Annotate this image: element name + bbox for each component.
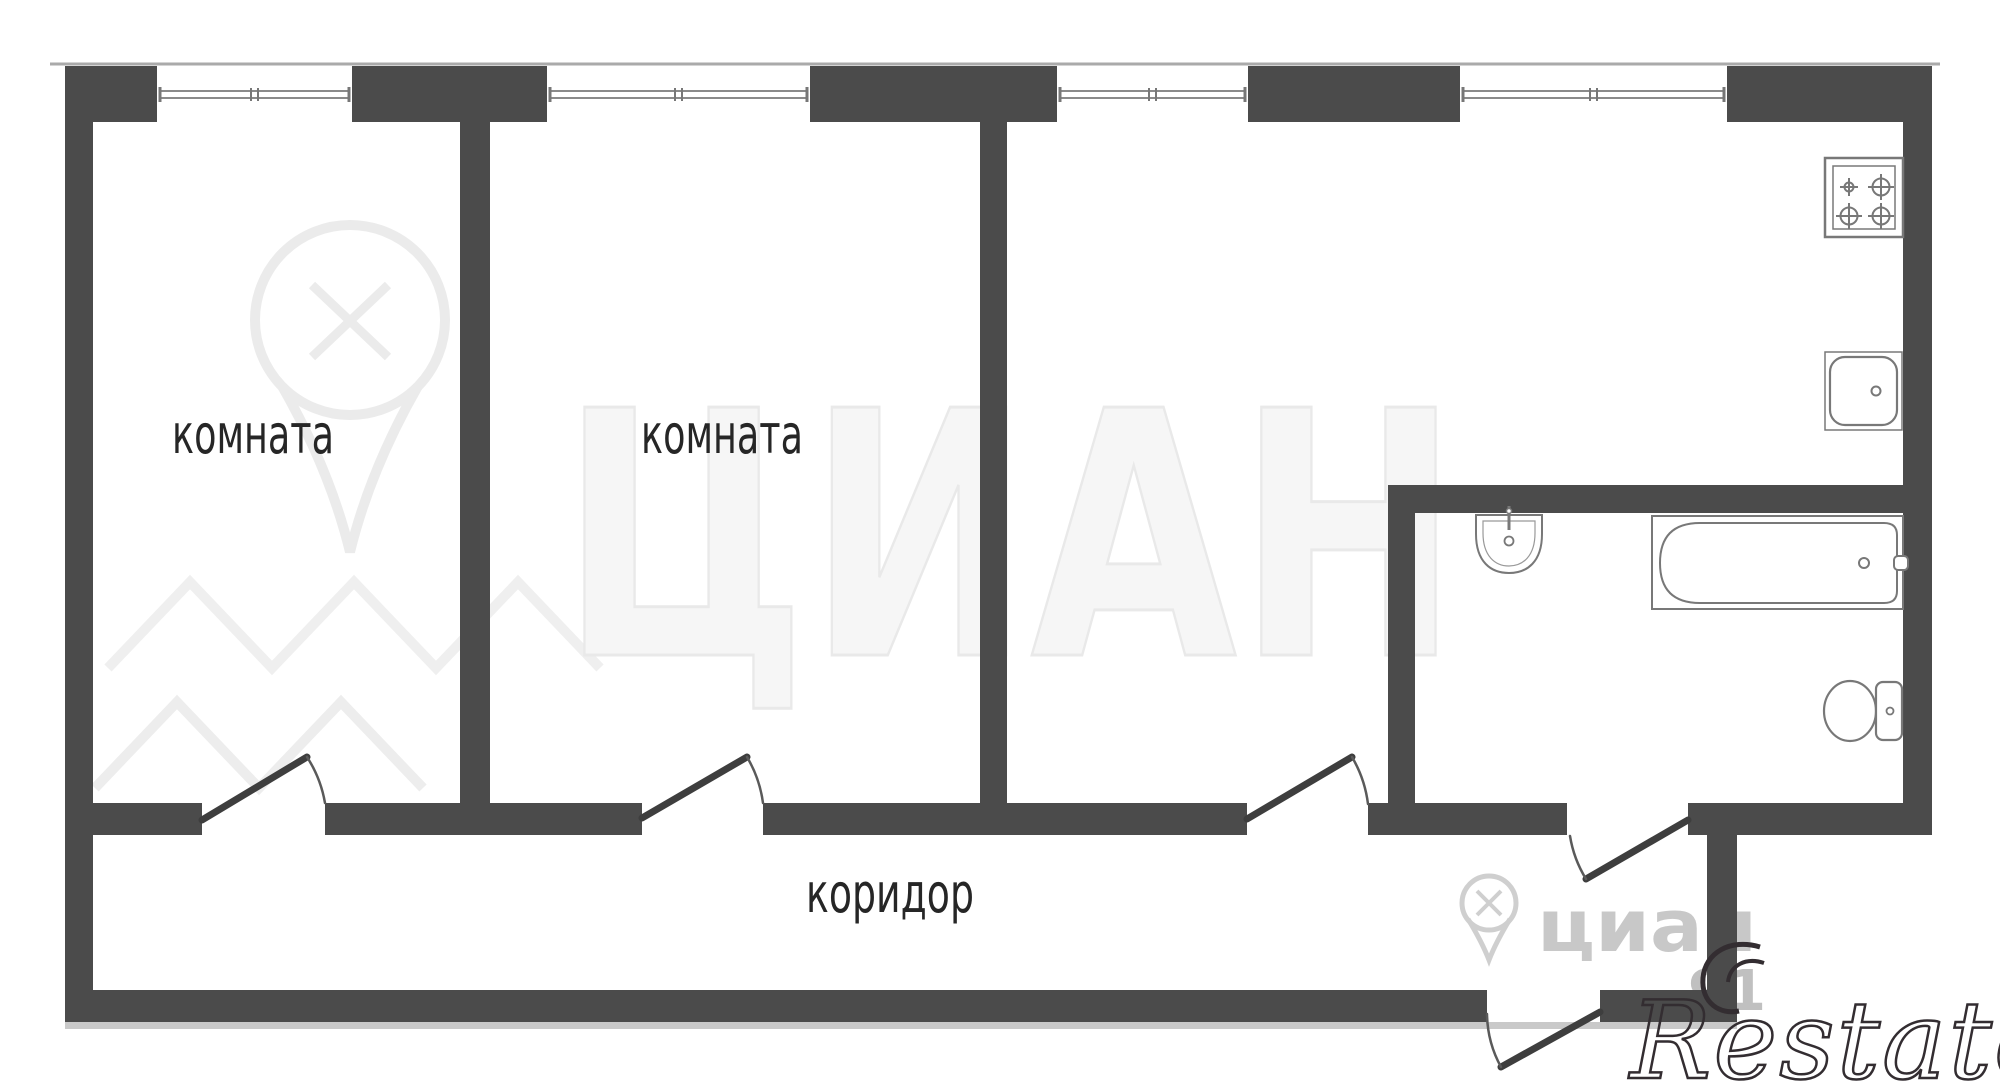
wall-room1-room2 [460, 122, 490, 803]
wall-corridor-seg5 [1688, 803, 1932, 835]
stove-icon [1825, 158, 1903, 237]
window-icon [157, 66, 352, 122]
door-arc-kitchen [1247, 757, 1368, 819]
wall-exterior-left [65, 66, 93, 1022]
map-pin-icon [255, 225, 445, 552]
floor-plan-canvas: ЦИАН циан 91 [0, 0, 2000, 1091]
watermark-brand-text: ЦИАН [560, 340, 1460, 736]
map-pin-icon [1462, 876, 1516, 960]
cian-watermark-large: ЦИАН [95, 225, 1460, 788]
door-arc-entrance [1487, 1012, 1600, 1067]
room-label-2: комната [641, 403, 803, 466]
wall-bottom-shadow [65, 1022, 1737, 1029]
wall-corridor-seg4 [1368, 803, 1567, 835]
window-icon [547, 66, 810, 122]
fixtures [1476, 158, 1908, 741]
restate-logo-text: Restate [1628, 979, 2000, 1091]
window-icon [1460, 66, 1727, 122]
wall-bathroom-left [1388, 485, 1415, 835]
wall-exterior-right [1903, 66, 1932, 835]
wall-bathroom-top [1388, 485, 1932, 513]
zigzag-watermark [108, 582, 600, 668]
bathtub-icon [1652, 516, 1908, 609]
corridor-label: коридор [806, 862, 974, 925]
room-label-1: комната [172, 403, 334, 466]
wall-corridor-right [1707, 835, 1737, 990]
door-arc-room2 [642, 757, 763, 818]
washbasin-icon [1476, 506, 1542, 573]
door-arc-bathroom [1570, 820, 1688, 879]
wall-corridor-seg1 [93, 803, 202, 835]
wall-exterior-bottom [65, 990, 1487, 1022]
kitchen-sink-icon [1825, 352, 1902, 430]
wall-corridor-seg3 [763, 803, 1247, 835]
wall-corridor-seg2 [325, 803, 642, 835]
wall-room2-kitchen [980, 122, 1007, 803]
window-icon [1057, 66, 1248, 122]
toilet-icon [1824, 681, 1902, 741]
zigzag-watermark [95, 702, 423, 788]
floor-plan-page: ЦИАН циан 91 [0, 0, 2000, 1091]
